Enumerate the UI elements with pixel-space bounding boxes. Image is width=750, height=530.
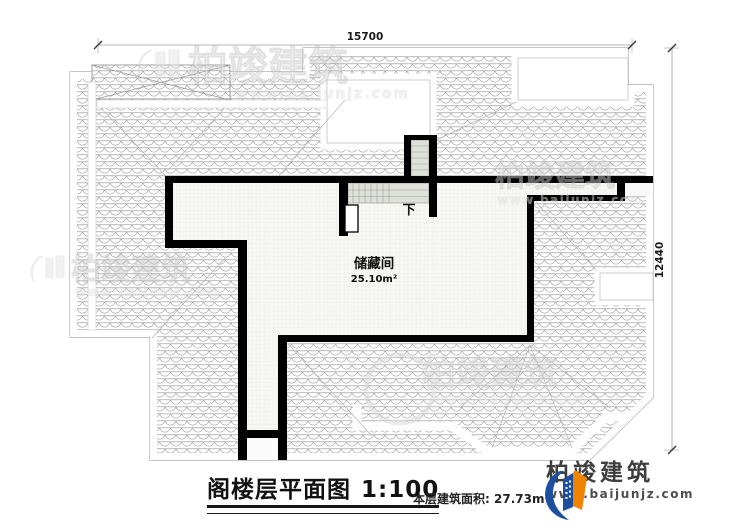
roof-notch-top-right: [518, 58, 628, 100]
floor-area-label: 本层建筑面积:: [413, 492, 490, 506]
brand-logo: 柏竣建筑 www.baijunjz.com: [540, 461, 694, 501]
watermark-url: www.baijunjz.com: [497, 193, 644, 207]
brand-logo-icon: [540, 461, 594, 523]
watermark-text: 柏竣建筑: [495, 159, 615, 194]
floor-area-note: 本层建筑面积: 27.73m²: [413, 490, 550, 507]
watermark-text: 柏竣建筑: [71, 253, 191, 288]
plan-title-block: 阁楼层平面图1:100: [207, 470, 439, 514]
watermark-text: 柏竣建筑: [188, 44, 348, 90]
watermark-url: www.baijunjz.com: [75, 285, 222, 299]
room-area-label: 25.10m²: [351, 274, 397, 285]
plan-title: 阁楼层平面图: [207, 477, 351, 503]
dimension-top-label: 15700: [347, 31, 384, 43]
room-name-label: 储藏间: [353, 255, 395, 272]
roof-notch-right: [600, 273, 653, 300]
floor-plan-canvas: 15700 12440 储藏间 25.10m² 下 柏竣建筑 www.baiju…: [0, 0, 750, 530]
watermark-url: www.baijunjz.com: [235, 86, 410, 102]
watermark-text: 柏竣建筑: [422, 354, 558, 394]
door-symbol: [345, 205, 358, 232]
watermark-url: www.baijunjz.com: [432, 392, 589, 407]
channel-gap: [247, 438, 278, 459]
title-underline: [207, 505, 439, 514]
dimension-right-label: 12440: [654, 242, 666, 279]
stair-down-label: 下: [402, 203, 415, 218]
